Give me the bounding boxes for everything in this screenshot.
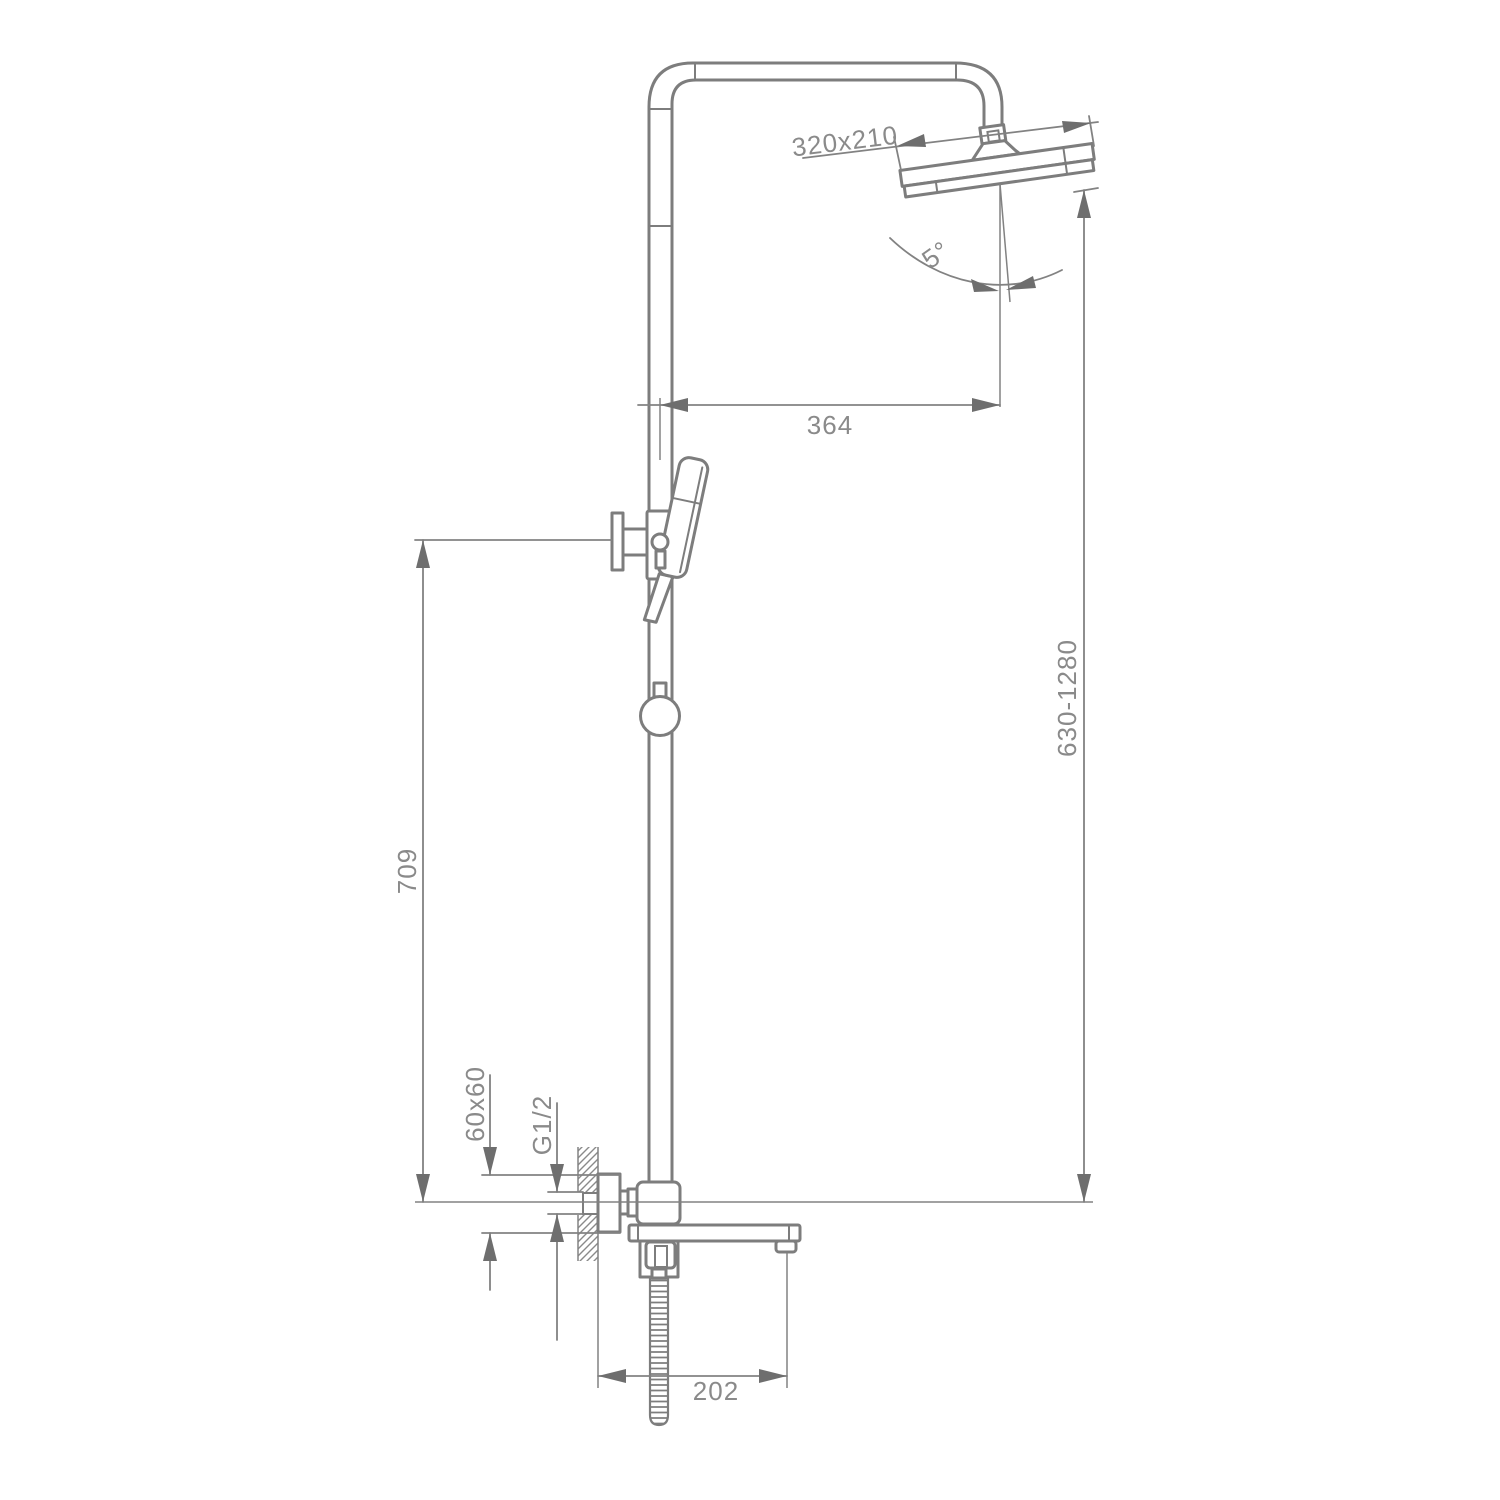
- extension-tick: [1074, 188, 1098, 192]
- dim-head-angle: 5°: [890, 184, 1062, 407]
- spout-bar: [629, 1225, 800, 1241]
- extension-tick: [1089, 116, 1094, 146]
- slider-knob: [641, 683, 680, 736]
- dim-arm-offset-label: 364: [807, 410, 853, 440]
- spout-mouth: [776, 1241, 796, 1252]
- dim-head-size-label: 320x210: [790, 120, 900, 163]
- holder-pivot: [652, 534, 668, 550]
- hose-neck: [652, 1269, 666, 1278]
- holder-slot: [656, 551, 665, 568]
- dim-bracket-height-label: 709: [392, 848, 422, 894]
- arm-outer-edge: [649, 63, 1002, 1182]
- dim-escutcheon-label: 60x60: [460, 1066, 490, 1142]
- dim-spout-reach: 202: [598, 1253, 787, 1406]
- arrow-up: [483, 1233, 497, 1261]
- thread-nipple: [583, 1193, 598, 1214]
- holder-wall-knob: [612, 513, 623, 570]
- dim-thread-label: G1/2: [527, 1095, 557, 1155]
- arrow-left: [897, 134, 926, 147]
- slider-ball: [641, 697, 680, 736]
- arrow-down: [1077, 1174, 1091, 1202]
- wall-hatch-upper: [578, 1147, 598, 1192]
- dim-head-angle-label: 5°: [916, 235, 955, 275]
- holder-stem: [623, 529, 647, 555]
- dim-arm-offset: 364: [638, 398, 1000, 460]
- technical-drawing-page: 320x210 5° 364 709 630-1280: [0, 0, 1500, 1500]
- hose-corrugated: [650, 1278, 668, 1425]
- escutcheon-flange: [598, 1174, 620, 1232]
- arrow-down: [416, 1174, 430, 1202]
- dim-thread: G1/2: [527, 1095, 583, 1340]
- arrow-right: [972, 398, 1000, 412]
- arrow-right: [1006, 276, 1036, 290]
- arrow-down: [483, 1147, 497, 1175]
- shower-column-drawing: 320x210 5° 364 709 630-1280: [0, 0, 1500, 1500]
- arrow-up: [550, 1214, 564, 1242]
- valve-body: [637, 1182, 680, 1224]
- arrow-right: [759, 1369, 787, 1383]
- arrow-up: [416, 540, 430, 568]
- angle-arc: [890, 238, 1062, 285]
- wall-hatch-lower: [578, 1215, 598, 1261]
- dim-riser-height-label: 630-1280: [1052, 639, 1082, 757]
- arrow-up: [1077, 190, 1091, 218]
- arrow-down: [550, 1164, 564, 1192]
- wall-section: [578, 1147, 598, 1388]
- arrow-left: [660, 398, 688, 412]
- arrow-right: [1062, 121, 1091, 133]
- dim-spout-reach-label: 202: [693, 1376, 739, 1406]
- arrow-left: [598, 1369, 626, 1383]
- dim-riser-height: 630-1280: [1052, 188, 1098, 1202]
- riser-and-overhead-arm: [649, 63, 1002, 1182]
- dim-bracket-height: 709: [392, 540, 612, 1202]
- shower-hose: [650, 1269, 668, 1425]
